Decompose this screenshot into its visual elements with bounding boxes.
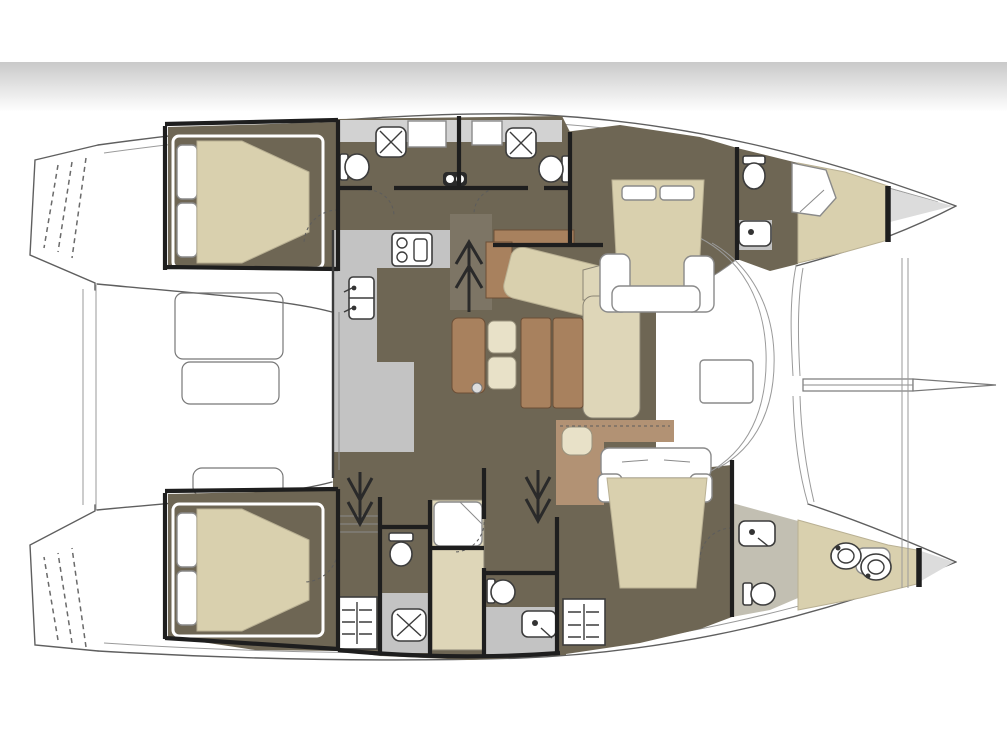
toilet-icon — [743, 156, 765, 189]
screenshot-root — [0, 0, 1007, 755]
double-sink-icon — [344, 277, 374, 319]
washbasin-icon — [522, 611, 556, 638]
toilet-icon — [539, 156, 570, 182]
louver-vent-icon — [337, 597, 377, 649]
port-bath-cabinet-2 — [472, 121, 502, 145]
bench-cushion-button — [472, 383, 482, 393]
toilet-icon — [340, 154, 369, 180]
louver-vent-icon — [563, 599, 605, 645]
stove-icon — [392, 233, 432, 266]
salon-stool — [488, 357, 516, 389]
salon-bench — [452, 318, 485, 393]
l-shaped-sofa — [583, 296, 640, 418]
wash-bowl-icon — [861, 554, 891, 580]
shower-icon — [392, 609, 426, 641]
salon-stool — [488, 321, 516, 353]
port-forward-cabin — [600, 180, 714, 312]
port-bath-cabinet — [408, 121, 446, 147]
shower-icon — [376, 127, 406, 157]
pillow — [177, 145, 197, 199]
toilet-icon — [487, 579, 515, 604]
pillow — [177, 513, 197, 567]
dining-table-half — [553, 318, 583, 408]
pillow — [177, 571, 197, 625]
wash-bowl-icon — [831, 543, 861, 569]
pillow — [622, 186, 656, 200]
twin-washbasins-icon — [443, 172, 467, 186]
dining-table-half — [521, 318, 551, 408]
salon-pouf — [562, 427, 592, 455]
toilet-icon — [389, 533, 413, 566]
shower-icon — [506, 128, 536, 158]
pillow — [177, 203, 197, 257]
washbasin-icon — [739, 521, 775, 546]
toilet-icon — [743, 583, 775, 605]
bed-foot-frame — [612, 286, 700, 312]
double-berth-mattress — [607, 478, 707, 588]
pillow — [660, 186, 694, 200]
washbasin-icon — [739, 221, 771, 246]
catamaran-floorplan — [0, 0, 1007, 755]
deck-hatch — [700, 360, 753, 403]
top-gradient-band — [0, 62, 1007, 112]
galley-foot-counter — [333, 362, 414, 452]
corridor-shelf-unit — [434, 502, 482, 546]
